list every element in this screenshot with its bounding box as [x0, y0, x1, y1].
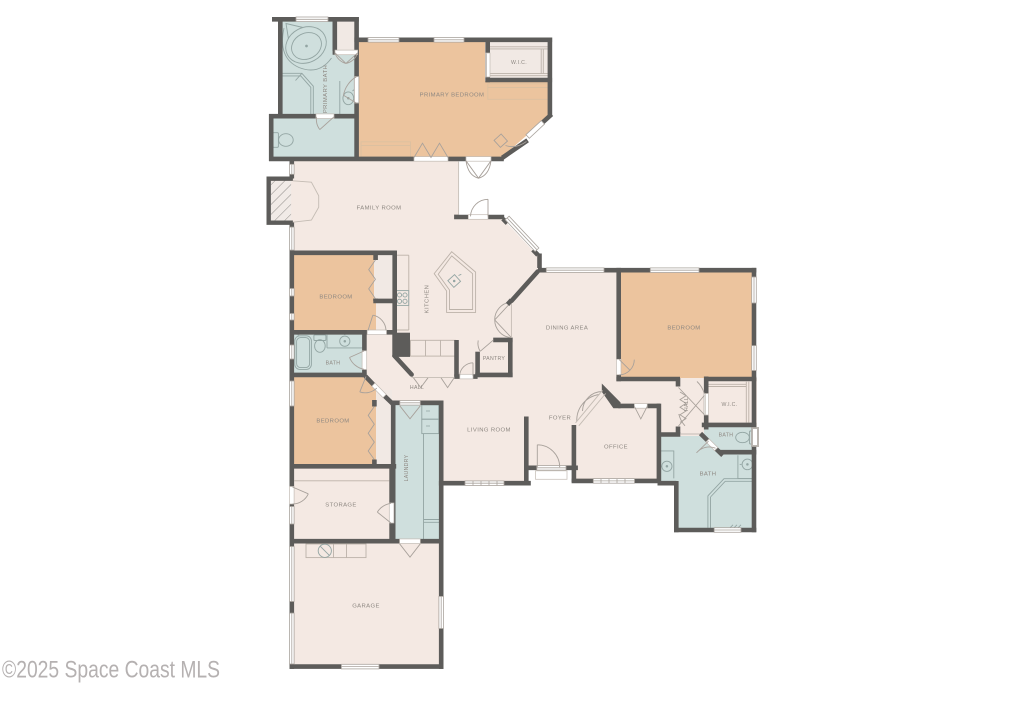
svg-text:BATH: BATH [326, 361, 341, 367]
svg-text:W.I.C.: W.I.C. [511, 60, 527, 66]
svg-text:KITCHEN: KITCHEN [425, 285, 431, 314]
svg-text:BATH: BATH [700, 472, 717, 478]
svg-text:BEDROOM: BEDROOM [319, 295, 352, 301]
svg-text:©2025 Space Coast MLS: ©2025 Space Coast MLS [2, 657, 220, 684]
svg-text:LIVING ROOM: LIVING ROOM [467, 428, 511, 434]
svg-text:FOYER: FOYER [549, 416, 571, 422]
svg-text:OFFICE: OFFICE [604, 445, 628, 451]
svg-text:STORAGE: STORAGE [325, 503, 357, 509]
svg-text:BEDROOM: BEDROOM [667, 326, 700, 332]
svg-text:FAMILY ROOM: FAMILY ROOM [357, 206, 402, 212]
svg-text:PRIMARY BEDROOM: PRIMARY BEDROOM [420, 93, 485, 99]
svg-text:HALL: HALL [410, 385, 424, 391]
svg-text:W.I.C.: W.I.C. [722, 402, 738, 408]
svg-text:GARAGE: GARAGE [352, 604, 380, 610]
svg-text:PANTRY: PANTRY [483, 356, 506, 362]
svg-text:BEDROOM: BEDROOM [316, 419, 349, 425]
svg-text:LAUNDRY: LAUNDRY [404, 454, 410, 481]
svg-text:BATH: BATH [719, 433, 734, 439]
svg-text:DINING AREA: DINING AREA [546, 326, 588, 332]
svg-text:HALL: HALL [684, 397, 690, 411]
svg-text:PRIMARY BATH: PRIMARY BATH [323, 65, 329, 113]
